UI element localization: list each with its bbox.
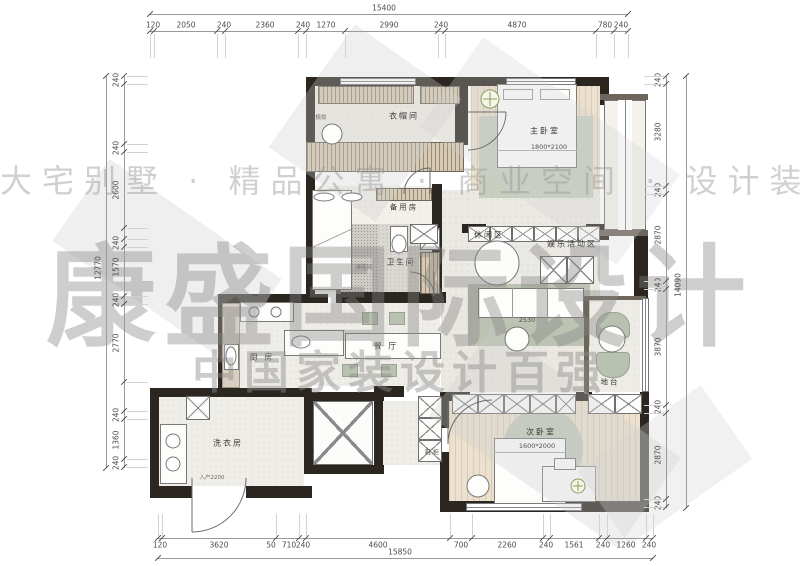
dimension-label: 2870 <box>654 445 663 464</box>
extension-line <box>644 413 665 414</box>
dimension-label: 780 <box>598 21 612 30</box>
dimension-label: 240 <box>596 541 610 550</box>
dimension-label: 4600 <box>368 541 387 550</box>
dimension-label: 240 <box>539 541 553 550</box>
dimension-label: 2260 <box>497 541 516 550</box>
extension-line <box>158 514 159 536</box>
extension-line <box>306 34 307 58</box>
dimension-label: 3280 <box>654 122 663 141</box>
dimension-label: 2990 <box>379 21 398 30</box>
extension-line <box>607 514 608 536</box>
extension-line <box>127 296 148 297</box>
dimension-label: 700 <box>454 541 468 550</box>
extension-line <box>646 514 647 536</box>
dimension-label: 240 <box>654 400 663 414</box>
dimension-label: 2770 <box>112 333 121 352</box>
dimension-label: 1570 <box>112 257 121 276</box>
dimension-label: 2360 <box>255 21 274 30</box>
extension-line <box>127 247 148 248</box>
dimension-label: 240 <box>654 278 663 292</box>
dimension-annotations: 1540015850127701409012020502402360240127… <box>0 0 800 566</box>
dimension-line <box>150 14 628 15</box>
dimension-tick <box>683 505 689 511</box>
dimension-label: 1260 <box>616 541 635 550</box>
extension-line <box>154 34 155 58</box>
extension-line <box>644 281 665 282</box>
dimension-tick <box>650 555 656 561</box>
dimension-label: 240 <box>654 496 663 510</box>
dimension-label: 240 <box>642 541 656 550</box>
extension-line <box>127 304 148 305</box>
dimension-overall-left: 12770 <box>94 256 103 280</box>
dimension-overall-bottom: 15850 <box>388 548 412 557</box>
floor-plan-canvas: 衣帽间 梳妆 主卧室 1800*2100 备用房 卫生间 淋浴间 休闲区 娱乐活… <box>0 0 800 566</box>
extension-line <box>127 419 148 420</box>
dimension-label: 2870 <box>654 225 663 244</box>
extension-line <box>127 84 148 85</box>
dimension-label: 4870 <box>507 21 526 30</box>
dimension-label: 240 <box>112 236 121 250</box>
dimension-label: 1360 <box>112 430 121 449</box>
extension-line <box>298 34 299 58</box>
dimension-label: 240 <box>296 541 310 550</box>
extension-line <box>225 34 226 58</box>
extension-line <box>472 514 473 536</box>
dimension-label: 1270 <box>316 21 335 30</box>
dimension-label: 3620 <box>209 541 228 550</box>
extension-line <box>127 382 148 383</box>
extension-line <box>306 514 307 536</box>
extension-line <box>150 34 151 58</box>
extension-line <box>550 514 551 536</box>
extension-line <box>644 289 665 290</box>
dimension-line <box>686 76 687 508</box>
dimension-label: 2050 <box>176 21 195 30</box>
dimension-label: 120 <box>153 541 167 550</box>
dimension-line <box>158 558 653 559</box>
extension-line <box>127 144 148 145</box>
dimension-label: 710 <box>282 541 296 550</box>
extension-line <box>614 34 615 58</box>
dimension-line <box>158 538 653 539</box>
dimension-label: 3870 <box>654 337 663 356</box>
extension-line <box>445 34 446 58</box>
extension-line <box>127 411 148 412</box>
dimension-label: 50 <box>266 541 276 550</box>
dimension-label: 240 <box>654 73 663 87</box>
extension-line <box>162 514 163 536</box>
dimension-line <box>666 76 667 508</box>
extension-line <box>127 228 148 229</box>
extension-line <box>217 34 218 58</box>
extension-line <box>450 514 451 536</box>
dimension-label: 2600 <box>112 180 121 199</box>
dimension-tick <box>625 11 631 17</box>
extension-line <box>543 514 544 536</box>
extension-line <box>644 76 665 77</box>
dimension-label: 240 <box>654 183 663 197</box>
extension-line <box>653 514 654 536</box>
dimension-label: 240 <box>112 141 121 155</box>
extension-line <box>299 514 300 536</box>
extension-line <box>345 34 346 58</box>
dimension-label: 240 <box>112 293 121 307</box>
extension-line <box>599 514 600 536</box>
dimension-label: 1561 <box>564 541 583 550</box>
extension-line <box>644 405 665 406</box>
dimension-overall-top: 15400 <box>372 4 396 13</box>
extension-line <box>127 152 148 153</box>
extension-line <box>438 34 439 58</box>
dimension-label: 240 <box>112 408 121 422</box>
extension-line <box>644 186 665 187</box>
extension-line <box>127 239 148 240</box>
dimension-tick <box>103 465 109 471</box>
extension-line <box>127 459 148 460</box>
extension-line <box>276 514 277 536</box>
dimension-label: 240 <box>112 73 121 87</box>
dimension-line <box>106 76 107 468</box>
extension-line <box>127 467 148 468</box>
dimension-overall-right: 14090 <box>674 273 683 297</box>
extension-line <box>644 194 665 195</box>
extension-line <box>644 507 665 508</box>
extension-line <box>644 84 665 85</box>
extension-line <box>628 34 629 58</box>
extension-line <box>644 499 665 500</box>
extension-line <box>127 76 148 77</box>
extension-line <box>596 34 597 58</box>
dimension-label: 240 <box>112 456 121 470</box>
